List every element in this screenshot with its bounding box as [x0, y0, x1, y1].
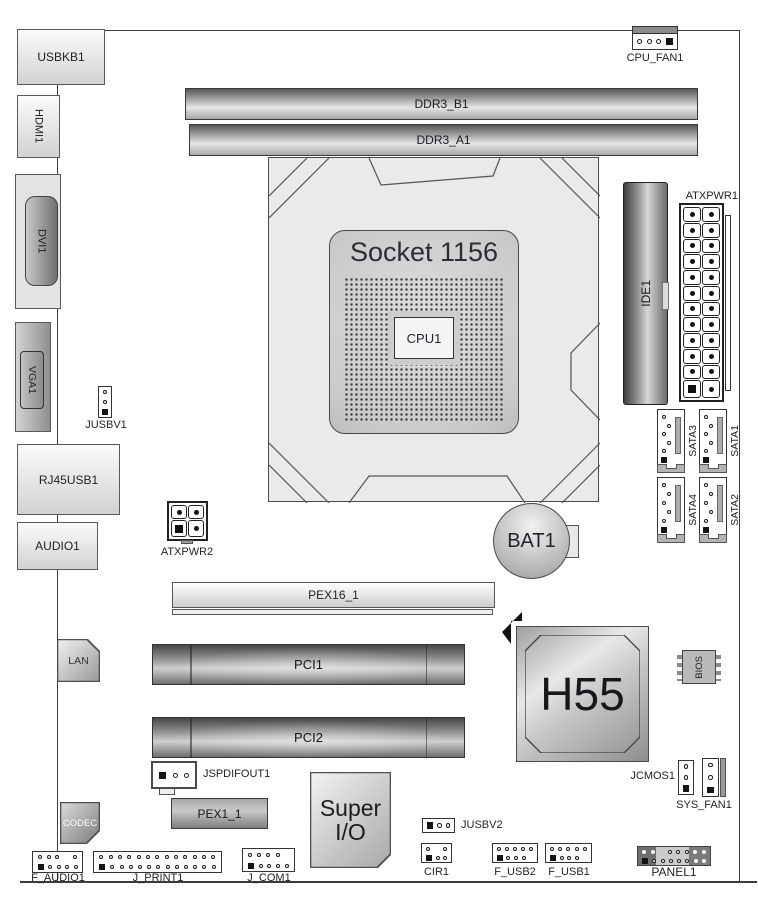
pin-1	[38, 864, 44, 870]
sata2-base	[699, 534, 727, 543]
bat1-label: BAT1	[507, 530, 556, 553]
pin-row	[702, 439, 715, 448]
pin-row	[422, 853, 451, 862]
cpu-fan1-latch	[633, 27, 677, 34]
bios-label: BIOS	[694, 656, 705, 679]
pci2-slot: PCI2	[152, 717, 465, 758]
pin-1	[661, 457, 667, 463]
pin	[667, 424, 671, 428]
pin-1	[688, 385, 696, 393]
pin	[662, 449, 666, 453]
pin	[55, 855, 59, 859]
pin-row	[702, 481, 715, 490]
pin-row	[660, 507, 673, 516]
jusbv1-label: JUSBV1	[70, 419, 142, 432]
pci1-label: PCI1	[294, 657, 323, 672]
pin	[193, 855, 197, 859]
pin	[266, 853, 270, 857]
pin	[193, 865, 197, 869]
pin	[529, 847, 533, 851]
pex16-1-label: PEX16_1	[308, 588, 359, 602]
sata3-label: SATA3	[686, 409, 699, 473]
sata1-connector	[699, 409, 727, 473]
pin-1	[683, 785, 690, 792]
sata4-key	[675, 485, 681, 522]
atx-pin-cell	[683, 302, 701, 317]
pin	[73, 855, 77, 859]
pex1-1-slot: PEX1_1	[171, 798, 268, 829]
jspdifout1-label: JSPDIFOUT1	[203, 768, 303, 781]
pin	[522, 856, 526, 860]
pin	[514, 856, 518, 860]
atx-pin-cell	[702, 380, 720, 398]
atx-pin-cell	[702, 365, 720, 380]
dvi1-connector: DVI1	[25, 196, 58, 286]
pin	[637, 39, 642, 44]
f-usb2-header	[492, 843, 538, 863]
pin	[99, 855, 103, 859]
pin	[109, 855, 113, 859]
pin	[677, 859, 681, 863]
pin	[211, 855, 215, 859]
pin-row	[679, 772, 693, 783]
pin-row	[660, 481, 673, 490]
pin-1	[99, 864, 105, 870]
pin	[690, 322, 695, 327]
atx-pin-cell	[683, 223, 701, 238]
pin-row	[702, 516, 715, 525]
pin	[437, 823, 442, 828]
audio1-label: AUDIO1	[35, 539, 80, 553]
pex16-1-strip	[172, 609, 493, 615]
pin	[702, 859, 706, 863]
pin	[147, 865, 151, 869]
vga1-connector: VGA1	[20, 351, 44, 409]
pin	[183, 855, 187, 859]
pin-row	[99, 407, 111, 417]
pin-row	[660, 447, 673, 456]
atx-pin-cell	[683, 380, 701, 398]
pin	[647, 39, 652, 44]
jusbv1-jumper	[98, 386, 112, 418]
pin-1	[102, 409, 109, 416]
pin	[704, 432, 708, 436]
jspdifout1-connector	[151, 761, 197, 789]
pin	[48, 865, 52, 869]
pin-row	[702, 490, 715, 499]
pin	[118, 855, 122, 859]
pin	[676, 850, 680, 854]
super-io-label-line1: Super	[320, 796, 381, 820]
pci2-label: PCI2	[294, 730, 323, 745]
f-usb2-label: F_USB2	[489, 866, 541, 879]
pin	[57, 865, 61, 869]
jusbv2-jumper	[422, 818, 455, 833]
pin-1	[159, 772, 166, 779]
cpu1-box: CPU1	[394, 317, 454, 359]
pex1-1-label: PEX1_1	[197, 807, 241, 821]
pin	[127, 855, 131, 859]
j-com1-header	[242, 848, 295, 872]
pin	[443, 856, 447, 860]
pin	[690, 212, 695, 217]
pin	[709, 259, 714, 264]
atx-pin-cell	[683, 207, 701, 222]
pin-row	[243, 849, 294, 860]
pin-row	[702, 499, 715, 508]
pin	[704, 519, 708, 523]
pin	[259, 864, 263, 868]
pin	[651, 850, 655, 854]
pin	[267, 864, 271, 868]
atx-pin-cell	[683, 254, 701, 269]
pin	[684, 775, 689, 780]
pin	[690, 306, 695, 311]
pin	[690, 354, 695, 359]
pin	[137, 855, 141, 859]
codec-label: CODEC	[63, 818, 97, 829]
pin	[667, 510, 671, 514]
pin	[662, 432, 666, 436]
cir1-label: CIR1	[414, 866, 459, 879]
pin	[685, 859, 689, 863]
cpu-socket-area: Socket 1156 CPU1	[268, 157, 599, 502]
atx-pin-cell	[702, 239, 720, 254]
ddr3-b1-label: DDR3_B1	[414, 97, 468, 111]
pin-row	[702, 430, 715, 439]
atxpwr1-label: ATXPWR1	[648, 190, 738, 203]
pin-row	[703, 784, 718, 796]
pin-row	[660, 439, 673, 448]
pin	[662, 519, 666, 523]
atx-pin-cell	[683, 349, 701, 364]
pin-1	[661, 527, 667, 533]
pin	[202, 865, 206, 869]
pin	[166, 865, 170, 869]
sata2-label: SATA2	[728, 477, 741, 543]
pin-row	[99, 387, 111, 397]
pin-row	[702, 507, 715, 516]
pin-row	[638, 847, 710, 856]
pin	[567, 856, 571, 860]
pin	[704, 449, 708, 453]
pin	[704, 415, 708, 419]
ddr3-a1-slot: DDR3_A1	[189, 124, 698, 156]
cpu-fan1-label: CPU_FAN1	[612, 52, 698, 65]
pin-1	[666, 38, 673, 45]
pin	[668, 850, 672, 854]
pin-row	[660, 413, 673, 422]
f-audio1-label: F_AUDIO1	[21, 872, 95, 885]
motherboard-diagram: USBKB1 HDMI1 DVI1 VGA1 RJ45USB1 AUDIO1 C…	[0, 0, 758, 901]
pin	[708, 763, 713, 768]
rj45usb1-port: RJ45USB1	[17, 444, 120, 515]
pin-1	[427, 822, 434, 829]
pin	[276, 864, 280, 868]
pin-row	[702, 413, 715, 422]
pin	[74, 865, 78, 869]
sata1-key	[717, 417, 723, 454]
pin	[156, 865, 160, 869]
pin	[506, 856, 510, 860]
pin	[436, 856, 440, 860]
pci1-slot: PCI1	[152, 644, 465, 685]
pin	[103, 390, 108, 395]
dvi1-label: DVI1	[36, 229, 48, 253]
ide1-slot: IDE1	[623, 182, 668, 405]
pin-row	[660, 430, 673, 439]
pin	[285, 864, 289, 868]
pin	[110, 865, 114, 869]
pin	[684, 764, 689, 769]
atx-pin-cell	[702, 317, 720, 332]
pin-row	[679, 761, 693, 772]
sata2-key	[717, 485, 723, 522]
atxpwr1-latch	[725, 215, 731, 391]
pin	[709, 354, 714, 359]
pin	[693, 850, 697, 854]
pin-row	[33, 862, 82, 872]
jusbv2-label: JUSBV2	[461, 819, 523, 832]
atx-pin-cell	[188, 520, 204, 537]
pin	[177, 510, 182, 515]
ide1-label: IDE1	[639, 280, 653, 307]
pin	[146, 855, 150, 859]
pin	[694, 859, 698, 863]
jcmos1-jumper	[678, 760, 694, 795]
pin-row	[702, 456, 715, 465]
sata2-connector	[699, 477, 727, 543]
pin-row	[94, 862, 221, 872]
pin	[652, 859, 656, 863]
pin	[656, 39, 661, 44]
pin-1	[248, 863, 254, 869]
pin	[661, 859, 665, 863]
pin	[708, 775, 713, 780]
pin-row	[423, 819, 454, 832]
pin	[690, 369, 695, 374]
j-com1-label: J_COM1	[241, 872, 297, 885]
pin-row	[546, 853, 591, 862]
pin	[120, 865, 124, 869]
pin	[690, 243, 695, 248]
pin-1	[642, 858, 648, 864]
pin-row	[702, 447, 715, 456]
pin	[685, 850, 689, 854]
atx-pin-cell	[683, 333, 701, 348]
pin	[513, 847, 517, 851]
pin-row	[638, 856, 710, 865]
atxpwr2-tab	[181, 540, 193, 544]
pin	[47, 855, 51, 859]
pin-row	[703, 771, 718, 783]
pin-row	[94, 852, 221, 862]
cpu-fan1-header	[632, 26, 678, 50]
atx-pin-cell	[683, 317, 701, 332]
pin	[669, 859, 673, 863]
ide1-notch	[662, 282, 669, 310]
panel1-header	[637, 846, 711, 866]
sata4-base	[657, 534, 685, 543]
atx-pin-cell	[702, 349, 720, 364]
cpu-fan1-pins	[633, 34, 677, 49]
pin-row	[243, 860, 294, 871]
pin	[709, 510, 713, 514]
h55-chipset: H55	[516, 626, 649, 762]
super-io-chip: Super I/O	[310, 772, 391, 868]
pin	[505, 847, 509, 851]
atx-pin-cell	[702, 223, 720, 238]
pin	[155, 855, 159, 859]
pin	[575, 856, 579, 860]
vga1-port: VGA1	[15, 322, 51, 432]
pin-row	[679, 783, 693, 794]
pin	[690, 275, 695, 280]
pin	[709, 492, 713, 496]
pex16-1-slot: PEX16_1	[172, 582, 495, 608]
pin	[558, 847, 562, 851]
rj45usb1-label: RJ45USB1	[39, 473, 98, 487]
jcmos1-label: JCMOS1	[610, 770, 675, 783]
sata1-base	[699, 464, 727, 473]
pin	[257, 853, 261, 857]
pin	[690, 228, 695, 233]
pin	[174, 855, 178, 859]
pin	[704, 483, 708, 487]
atx-pin-cell	[702, 207, 720, 222]
atx-pin-cell	[683, 365, 701, 380]
atxpwr1-connector	[679, 203, 724, 402]
pin	[575, 847, 579, 851]
pin	[175, 865, 179, 869]
lan-chip: LAN	[57, 639, 100, 682]
atx-pin-cell	[683, 286, 701, 301]
pin	[662, 415, 666, 419]
pin	[497, 847, 501, 851]
pin	[662, 483, 666, 487]
pin	[173, 773, 178, 778]
pin-row	[702, 525, 715, 534]
pin	[709, 338, 714, 343]
socket-title: Socket 1156	[330, 237, 518, 268]
pin	[709, 306, 714, 311]
pin	[129, 865, 133, 869]
panel1-label: PANEL1	[639, 866, 709, 879]
pin-row	[546, 844, 591, 853]
pin-row	[493, 844, 537, 853]
pin	[690, 259, 695, 264]
super-io-label-line2: I/O	[335, 820, 366, 844]
sata4-label: SATA4	[686, 477, 699, 543]
ddr3-b1-slot: DDR3_B1	[185, 88, 698, 120]
atx-pin-cell	[683, 239, 701, 254]
pin	[65, 865, 69, 869]
f-usb1-header	[545, 843, 592, 863]
pin-row	[422, 844, 451, 853]
pin	[709, 369, 714, 374]
pin-1	[426, 855, 432, 861]
pin-1	[703, 457, 709, 463]
pin	[709, 291, 714, 296]
bat1-battery: BAT1	[493, 503, 570, 579]
pin	[276, 853, 280, 857]
pin	[138, 865, 142, 869]
pin	[709, 387, 714, 392]
pin	[443, 847, 447, 851]
pin	[709, 275, 714, 280]
pin	[702, 850, 706, 854]
pin-row	[660, 499, 673, 508]
pin	[550, 847, 554, 851]
pin	[704, 501, 708, 505]
socket-body: Socket 1156 CPU1	[329, 230, 519, 434]
atx-pin-cell	[188, 505, 204, 519]
pin	[38, 855, 42, 859]
pin	[184, 773, 189, 778]
atx-pin-cell	[702, 333, 720, 348]
pin-1	[175, 525, 183, 533]
lan-label: LAN	[68, 655, 88, 667]
pin	[709, 212, 714, 217]
usbkb1-port: USBKB1	[17, 29, 105, 85]
pin	[426, 847, 430, 851]
pin	[194, 510, 199, 515]
pin	[212, 865, 216, 869]
pin	[690, 291, 695, 296]
sys-fan1-ridge	[720, 758, 726, 797]
atx-pin-cell	[702, 286, 720, 301]
pin	[248, 853, 252, 857]
pin-row	[99, 397, 111, 407]
sata3-connector	[657, 409, 685, 473]
atx-pin-cell	[702, 302, 720, 317]
j-print1-label: J_PRINT1	[111, 872, 205, 885]
jspdifout1-tab	[159, 789, 175, 795]
pin	[184, 865, 188, 869]
pin	[667, 441, 671, 445]
h55-inner-outline	[525, 635, 640, 753]
pin	[560, 856, 564, 860]
pin	[709, 424, 713, 428]
sata4-connector	[657, 477, 685, 543]
cir1-header	[421, 843, 452, 863]
pin	[709, 228, 714, 233]
atx-pin-cell	[171, 520, 187, 537]
pin-row	[33, 852, 82, 862]
ddr3-a1-label: DDR3_A1	[416, 133, 470, 147]
pin	[194, 526, 199, 531]
sata3-key	[675, 417, 681, 454]
pin-1	[497, 855, 503, 861]
pin-row	[633, 34, 677, 49]
j-print1-header	[93, 851, 222, 873]
pin-1	[550, 855, 556, 861]
pin	[583, 847, 587, 851]
bios-chip: BIOS	[682, 650, 716, 684]
pin-row	[660, 516, 673, 525]
hdmi1-port: HDMI1	[17, 95, 60, 158]
sys-fan1-label: SYS_FAN1	[667, 799, 741, 812]
pin	[566, 847, 570, 851]
pin	[103, 400, 108, 405]
pin	[662, 501, 666, 505]
pin	[446, 823, 451, 828]
pin	[202, 855, 206, 859]
audio1-port: AUDIO1	[17, 522, 98, 570]
f-usb1-label: F_USB1	[543, 866, 595, 879]
sata3-base	[657, 464, 685, 473]
atx-pin-cell	[702, 254, 720, 269]
